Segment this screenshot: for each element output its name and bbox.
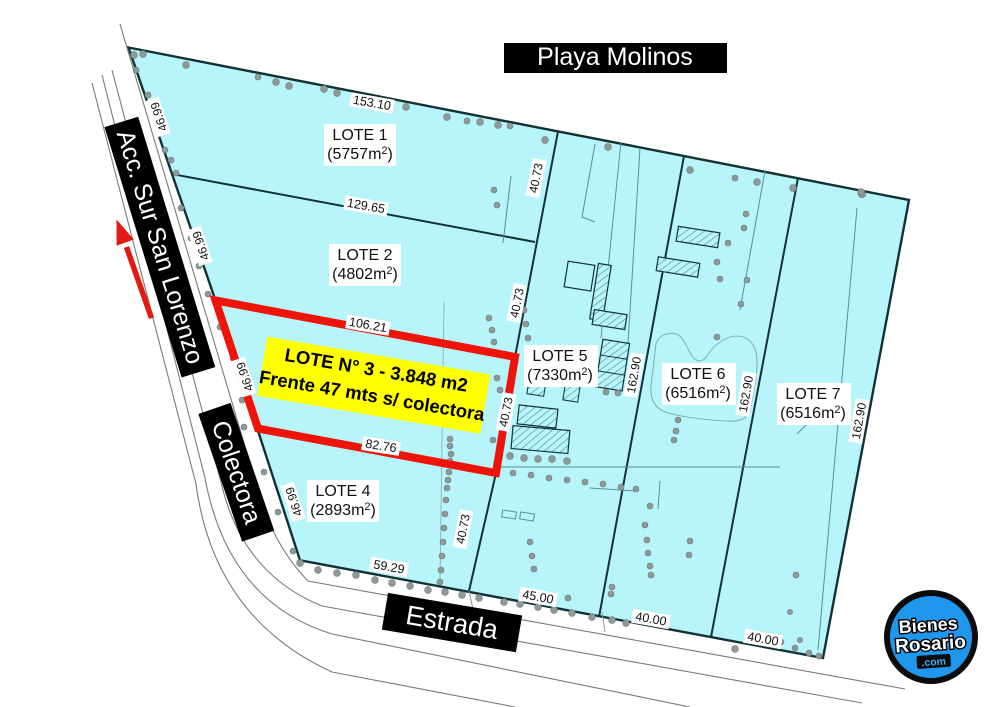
svg-text:LOTE 2: LOTE 2 <box>337 247 392 264</box>
svg-text:LOTE 4: LOTE 4 <box>315 483 370 500</box>
svg-text:LOTE 5: LOTE 5 <box>532 348 587 365</box>
svg-text:LOTE 7: LOTE 7 <box>785 386 840 403</box>
svg-text:Playa Molinos: Playa Molinos <box>537 43 693 71</box>
svg-text:LOTE 6: LOTE 6 <box>670 366 725 383</box>
svg-text:.com: .com <box>921 656 946 670</box>
svg-text:LOTE 1: LOTE 1 <box>332 127 387 144</box>
